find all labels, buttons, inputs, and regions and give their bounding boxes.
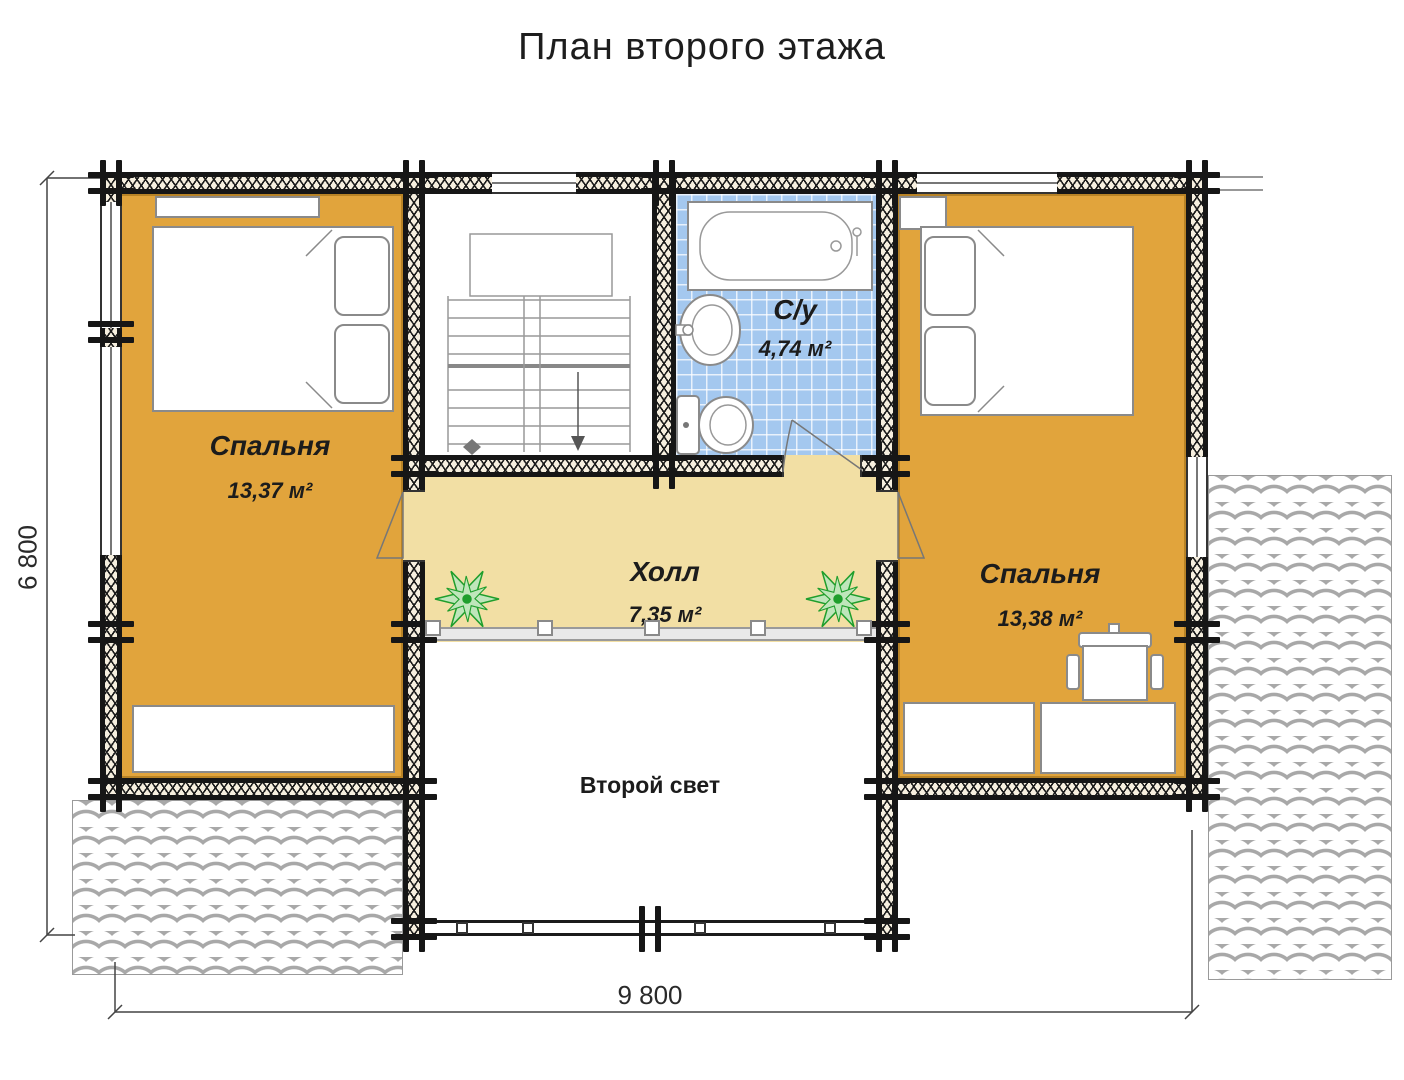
log-joint xyxy=(391,918,437,924)
log-joint xyxy=(1174,794,1220,800)
log-joint xyxy=(88,321,134,327)
window-left-upper xyxy=(100,202,122,328)
shelf xyxy=(155,196,320,218)
log-joint xyxy=(403,906,409,952)
log-joint xyxy=(892,906,898,952)
log-joint xyxy=(641,471,687,477)
log-joint xyxy=(876,766,882,812)
log-joint xyxy=(1174,621,1220,627)
roof-area-left xyxy=(72,800,403,975)
door-opening-left xyxy=(403,490,425,562)
log-joint xyxy=(1202,766,1208,812)
pillow xyxy=(924,236,976,316)
log-joint xyxy=(864,455,910,461)
railing-post xyxy=(694,922,706,934)
log-joint xyxy=(864,637,910,643)
log-joint xyxy=(653,443,659,489)
bathroom-label: С/у xyxy=(725,294,865,326)
log-joint xyxy=(1186,766,1192,812)
log-joint xyxy=(391,637,437,643)
armchair-arm xyxy=(1066,654,1080,690)
log-joint xyxy=(403,766,409,812)
log-joint xyxy=(403,160,409,206)
log-joint xyxy=(419,906,425,952)
log-joint xyxy=(391,172,437,178)
bottom-railing xyxy=(425,920,876,936)
bedroom-left-label: Спальня xyxy=(155,430,385,462)
log-joint xyxy=(864,188,910,194)
log-joint xyxy=(669,160,675,206)
floor-plan-page: План второго этажа Спальня 13,37 м² С/у … xyxy=(0,0,1404,1080)
wardrobe-left xyxy=(132,705,395,773)
pillow xyxy=(924,326,976,406)
log-joint xyxy=(419,443,425,489)
log-joint xyxy=(88,188,134,194)
railing-post xyxy=(456,922,468,934)
log-joint xyxy=(1174,188,1220,194)
log-joint xyxy=(391,778,437,784)
wardrobe-right xyxy=(903,702,1035,774)
log-joint xyxy=(864,794,910,800)
log-joint xyxy=(88,621,134,627)
railing-post xyxy=(750,620,766,636)
pillow xyxy=(334,324,390,404)
dimension-height: 6 800 xyxy=(13,463,44,653)
railing-post xyxy=(824,922,836,934)
log-joint xyxy=(641,188,687,194)
log-joint xyxy=(653,160,659,206)
stairwell-floor xyxy=(425,194,652,455)
log-joint xyxy=(876,906,882,952)
pillow xyxy=(334,236,390,316)
wall-bottom-right xyxy=(876,778,1208,800)
log-joint xyxy=(1186,160,1192,206)
log-joint xyxy=(892,443,898,489)
log-joint xyxy=(391,188,437,194)
log-joint xyxy=(88,794,134,800)
log-joint xyxy=(876,160,882,206)
page-title: План второго этажа xyxy=(518,26,886,69)
log-joint xyxy=(1174,778,1220,784)
door-opening-right xyxy=(876,490,898,562)
bedroom-right-area: 13,38 м² xyxy=(925,606,1155,632)
log-joint xyxy=(639,906,645,952)
wall-bottom-left xyxy=(100,778,425,800)
railing-post xyxy=(425,620,441,636)
wardrobe-right xyxy=(1040,702,1176,774)
log-joint xyxy=(88,778,134,784)
log-joint xyxy=(864,471,910,477)
log-joint xyxy=(864,918,910,924)
bathroom-area: 4,74 м² xyxy=(725,336,865,362)
bedroom-right-label: Спальня xyxy=(925,558,1155,590)
log-joint xyxy=(391,455,437,461)
log-joint xyxy=(1202,160,1208,206)
log-joint xyxy=(391,794,437,800)
railing-post xyxy=(856,620,872,636)
log-joint xyxy=(419,160,425,206)
log-joint xyxy=(1174,637,1220,643)
log-joint xyxy=(100,160,106,206)
wall-stair-bath xyxy=(652,172,676,477)
window-left-lower xyxy=(100,347,122,555)
window-top-right xyxy=(917,172,1057,194)
log-joint xyxy=(876,443,882,489)
log-joint xyxy=(403,443,409,489)
log-joint xyxy=(116,766,122,812)
log-joint xyxy=(100,766,106,812)
hall-area: 7,35 м² xyxy=(585,602,745,628)
dimension-width: 9 800 xyxy=(555,980,745,1011)
log-joint xyxy=(641,455,687,461)
armchair-seat xyxy=(1082,645,1148,701)
log-joint xyxy=(641,172,687,178)
armchair-arm xyxy=(1150,654,1164,690)
log-joint xyxy=(864,778,910,784)
log-joint xyxy=(892,766,898,812)
log-joint xyxy=(88,337,134,343)
railing-post xyxy=(522,922,534,934)
railing-post xyxy=(644,620,660,636)
roof-area-right xyxy=(1208,475,1392,980)
void-label: Второй свет xyxy=(535,772,765,799)
log-joint xyxy=(116,160,122,206)
log-joint xyxy=(88,172,134,178)
window-stairwell xyxy=(492,172,576,194)
log-joint xyxy=(655,906,661,952)
log-joint xyxy=(864,172,910,178)
log-joint xyxy=(864,934,910,940)
log-joint xyxy=(419,766,425,812)
nightstand xyxy=(899,196,947,230)
log-joint xyxy=(88,637,134,643)
hall-label: Холл xyxy=(585,556,745,588)
window-right xyxy=(1186,457,1208,557)
log-joint xyxy=(892,160,898,206)
log-joint xyxy=(391,471,437,477)
bedroom-left-area: 13,37 м² xyxy=(155,478,385,504)
log-joint xyxy=(391,934,437,940)
door-opening-bath xyxy=(782,455,862,477)
log-joint xyxy=(669,443,675,489)
log-joint xyxy=(1174,172,1220,178)
railing-post xyxy=(537,620,553,636)
